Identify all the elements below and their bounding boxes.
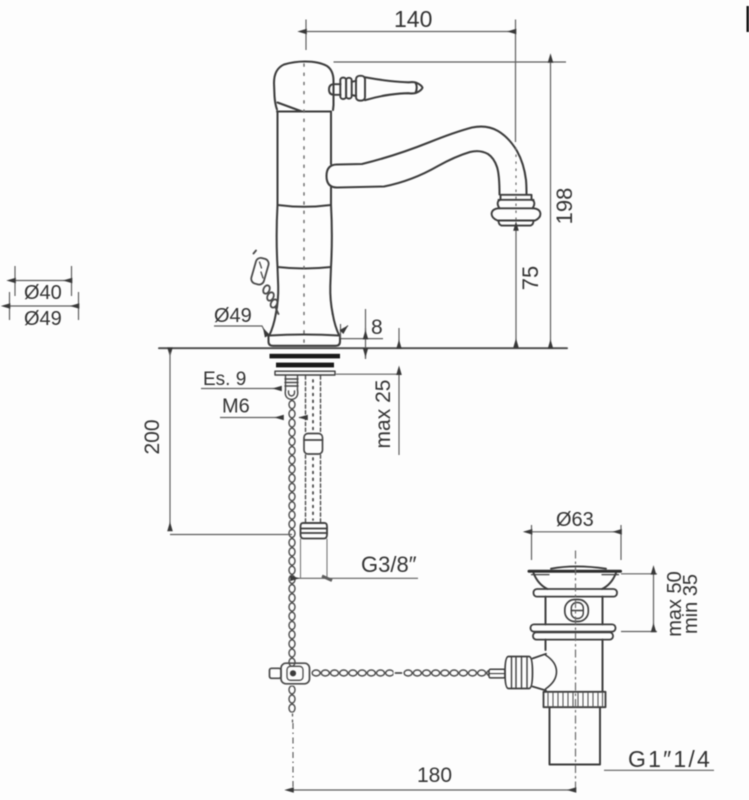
svg-text:G3/8″: G3/8″ — [361, 552, 417, 577]
svg-text:180: 180 — [417, 764, 452, 787]
svg-text:75: 75 — [518, 266, 543, 290]
svg-text:Es. 9: Es. 9 — [203, 369, 246, 390]
svg-text:G1″1/4: G1″1/4 — [628, 746, 712, 772]
svg-text:200: 200 — [141, 419, 164, 454]
svg-text:140: 140 — [394, 6, 432, 32]
svg-text:Ø40: Ø40 — [24, 282, 62, 304]
svg-text:min 35: min 35 — [680, 574, 702, 634]
svg-text:Ø63: Ø63 — [556, 509, 594, 531]
svg-text:Ø49: Ø49 — [214, 305, 252, 327]
svg-text:M6: M6 — [222, 396, 250, 418]
svg-text:max 25: max 25 — [372, 380, 395, 449]
svg-text:8: 8 — [371, 316, 383, 339]
svg-text:Ø49: Ø49 — [24, 308, 62, 330]
svg-text:198: 198 — [552, 188, 577, 225]
